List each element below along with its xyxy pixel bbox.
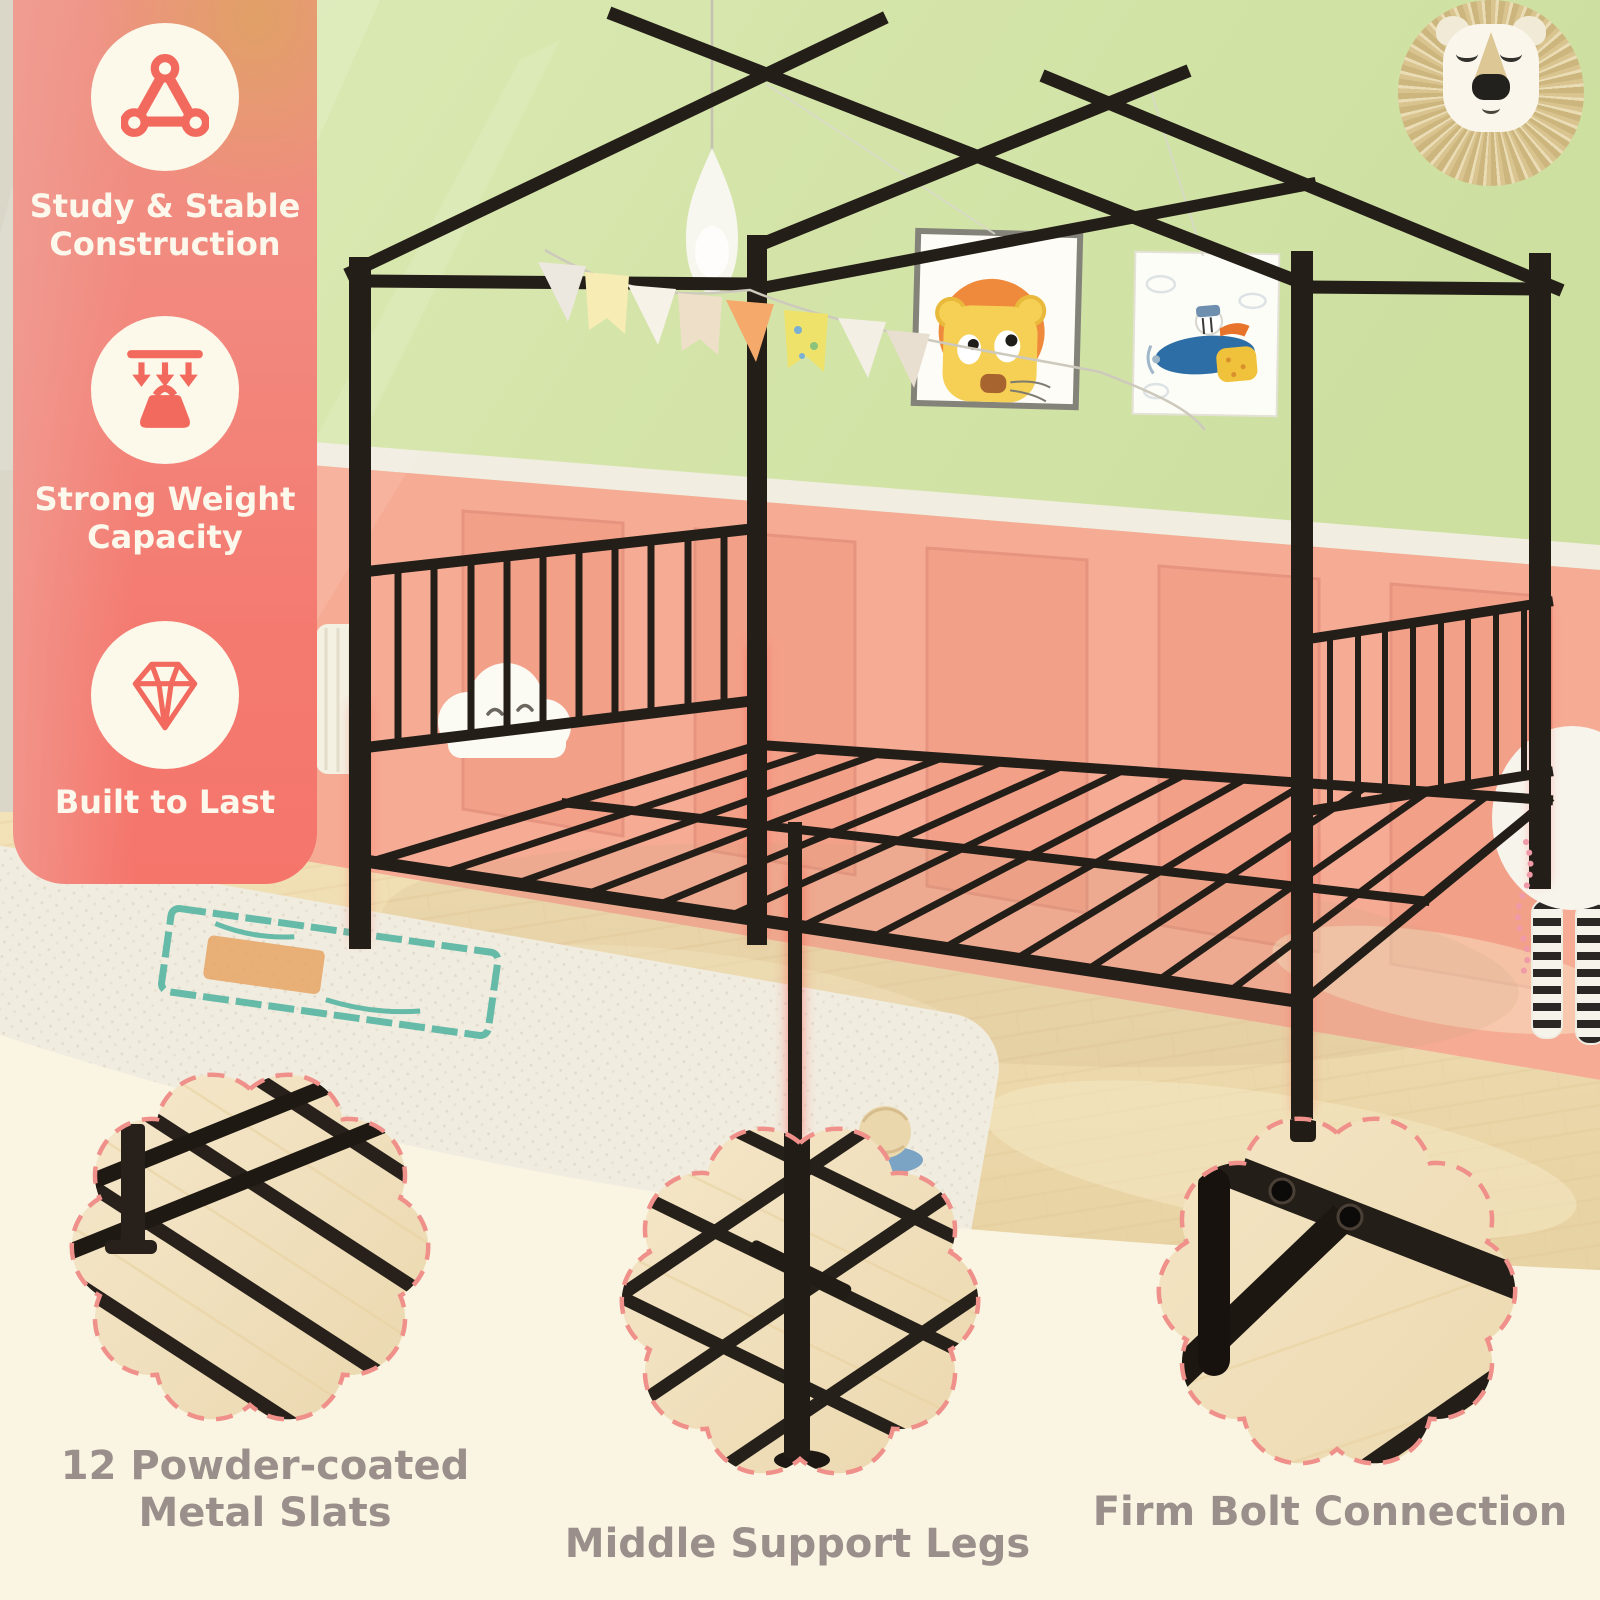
triangle-frame-icon: [91, 23, 239, 171]
support-leg-detail: [585, 1086, 1015, 1516]
lion-closed-eye: [1456, 46, 1478, 62]
feature-label: Strong Weight Capacity: [13, 481, 317, 557]
caption-metal-slats: 12 Powder-coated Metal Slats: [40, 1443, 490, 1537]
product-infographic: Study & Stable Construction Strong Weigh…: [0, 0, 1600, 1600]
lion-wall-decor-icon: [1398, 0, 1584, 186]
lion-mouth: [1482, 102, 1500, 114]
lion-nose: [1472, 74, 1510, 100]
callout-metal-slats: [35, 1032, 465, 1462]
airplane-picture: [1133, 252, 1280, 416]
caption-firm-bolt-connection: Firm Bolt Connection: [1075, 1489, 1585, 1536]
callout-middle-support-legs: [585, 1086, 1015, 1516]
metal-slats-detail: [35, 1032, 465, 1462]
features-panel: Study & Stable Construction Strong Weigh…: [13, 0, 317, 884]
bolt-connection-detail: [1122, 1076, 1552, 1506]
feature-label: Built to Last: [13, 784, 317, 822]
callout-firm-bolt-connection: [1122, 1076, 1552, 1506]
diamond-icon: [91, 621, 239, 769]
caption-middle-support-legs: Middle Support Legs: [545, 1521, 1050, 1568]
feature-label: Study & Stable Construction: [13, 188, 317, 264]
weight-capacity-icon: [91, 316, 239, 464]
lion-closed-eye: [1500, 46, 1522, 62]
